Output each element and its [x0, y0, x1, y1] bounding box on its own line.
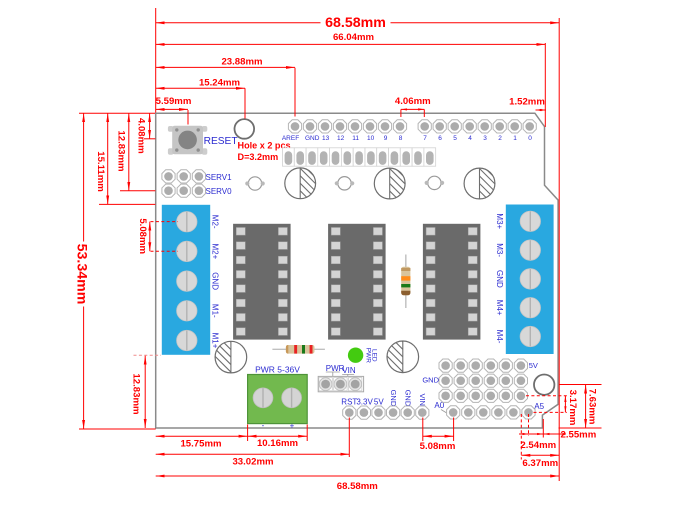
svg-text:3.3V: 3.3V [356, 398, 373, 407]
svg-text:GND: GND [495, 270, 504, 288]
svg-text:9: 9 [384, 135, 388, 142]
svg-text:33.02mm: 33.02mm [232, 457, 273, 468]
svg-text:23.88mm: 23.88mm [221, 57, 262, 68]
svg-text:0: 0 [528, 135, 532, 142]
svg-text:+: + [290, 421, 295, 430]
svg-text:11: 11 [352, 135, 359, 142]
svg-text:7.63mm: 7.63mm [587, 389, 598, 425]
svg-text:PWR: PWR [365, 348, 372, 363]
svg-text:M1-: M1- [210, 304, 219, 318]
svg-text:5V: 5V [374, 398, 384, 407]
svg-text:GND: GND [389, 390, 398, 407]
svg-text:D=3.2mm: D=3.2mm [238, 152, 279, 162]
svg-text:13: 13 [322, 135, 330, 142]
svg-text:10.16mm: 10.16mm [257, 438, 298, 449]
svg-text:A5: A5 [534, 402, 544, 411]
svg-text:VIN: VIN [342, 366, 356, 375]
svg-text:68.58mm: 68.58mm [337, 481, 378, 492]
svg-text:PWR 5-36V: PWR 5-36V [255, 365, 300, 375]
svg-text:6.37mm: 6.37mm [522, 458, 558, 469]
svg-text:12.83mm: 12.83mm [115, 130, 126, 171]
svg-text:5: 5 [453, 135, 457, 142]
svg-text:8: 8 [399, 135, 403, 142]
svg-text:-: - [262, 421, 265, 430]
svg-text:5V: 5V [529, 361, 538, 370]
svg-text:3: 3 [483, 135, 487, 142]
svg-text:15.24mm: 15.24mm [199, 78, 240, 89]
svg-text:15.75mm: 15.75mm [180, 439, 221, 450]
svg-text:LED: LED [371, 349, 378, 362]
svg-text:AREF: AREF [282, 135, 299, 142]
svg-text:5.08mm: 5.08mm [420, 441, 456, 452]
svg-text:66.04mm: 66.04mm [333, 32, 374, 43]
svg-text:M4+: M4+ [495, 300, 504, 316]
svg-text:GND: GND [305, 135, 320, 142]
svg-text:7: 7 [423, 135, 427, 142]
svg-text:M2-: M2- [210, 215, 219, 229]
svg-text:RESET: RESET [204, 136, 238, 147]
svg-text:GND: GND [210, 272, 219, 290]
svg-text:SERV0: SERV0 [206, 187, 233, 196]
svg-text:GND: GND [422, 376, 439, 385]
svg-text:15.11mm: 15.11mm [95, 151, 106, 192]
svg-text:12.83mm: 12.83mm [130, 373, 141, 414]
svg-text:SERV1: SERV1 [206, 173, 233, 182]
svg-text:12: 12 [337, 135, 345, 142]
svg-text:1.52mm: 1.52mm [509, 97, 545, 108]
svg-text:53.34mm: 53.34mm [73, 244, 89, 305]
svg-text:M2+: M2+ [210, 244, 219, 260]
svg-text:GND: GND [403, 390, 412, 407]
svg-text:2.55mm: 2.55mm [561, 430, 597, 441]
svg-text:1: 1 [513, 135, 517, 142]
svg-text:3.17mm: 3.17mm [567, 390, 578, 426]
svg-text:M1+: M1+ [210, 333, 219, 349]
svg-text:M4-: M4- [495, 330, 504, 344]
svg-text:10: 10 [367, 135, 375, 142]
svg-text:5.59mm: 5.59mm [156, 96, 192, 107]
svg-text:4.06mm: 4.06mm [395, 96, 431, 107]
svg-text:5.08mm: 5.08mm [137, 218, 148, 254]
svg-text:M3+: M3+ [495, 213, 504, 229]
svg-text:2.54mm: 2.54mm [520, 440, 556, 451]
svg-text:4: 4 [468, 135, 472, 142]
svg-text:VIN: VIN [418, 393, 427, 406]
svg-text:6: 6 [438, 135, 442, 142]
svg-text:2: 2 [498, 135, 502, 142]
svg-text:M3-: M3- [495, 243, 504, 257]
svg-text:4.08mm: 4.08mm [135, 118, 146, 154]
svg-text:RST: RST [341, 398, 357, 407]
svg-text:68.58mm: 68.58mm [325, 15, 386, 31]
